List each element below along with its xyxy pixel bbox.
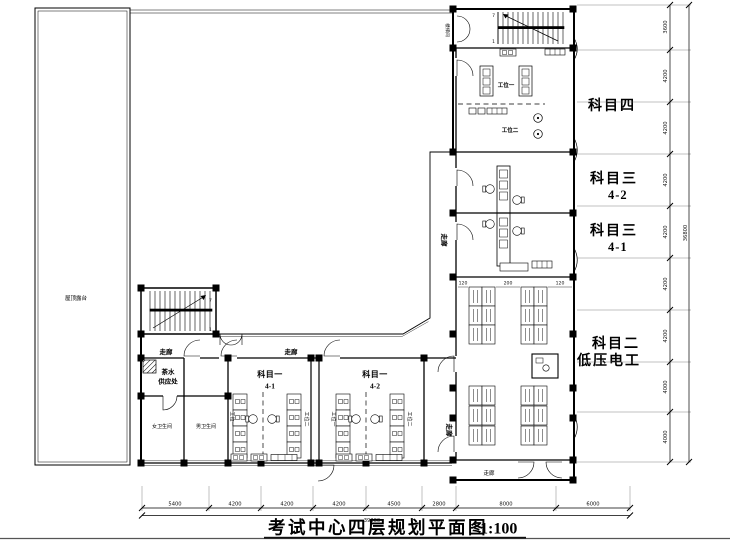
floor-plan-page: 屋顶露台 bbox=[0, 0, 730, 540]
title-block: 考试中心四层规划平面图 1:100 bbox=[0, 518, 730, 539]
label-corridor-5: 走廊 bbox=[483, 469, 495, 477]
dim-inner-1: 200 bbox=[504, 281, 513, 287]
label-station2-subject4: 工位二 bbox=[502, 126, 519, 134]
label-subject3-42: 科目三 bbox=[590, 170, 638, 187]
dim-right-4: 4200 bbox=[663, 225, 669, 238]
roof-terrace bbox=[35, 8, 130, 465]
dim-right-6: 4200 bbox=[663, 329, 669, 342]
label-station2-room2: 工位二 bbox=[406, 411, 413, 426]
label-corridor-4: 走廊 bbox=[445, 423, 454, 438]
label-subject2-line1: 科目二 bbox=[592, 335, 640, 352]
dim-right-1: 4200 bbox=[663, 69, 669, 82]
room-subject2-furniture bbox=[458, 287, 572, 445]
label-subject1-room2: 科目一 bbox=[362, 369, 388, 379]
label-subject1-room2-num: 4-2 bbox=[370, 382, 380, 391]
label-subject3-41-num: 4-1 bbox=[608, 240, 628, 254]
label-subject1-room1-num: 4-1 bbox=[265, 382, 275, 391]
stair-top-flight-number-bottom: 1 bbox=[492, 39, 495, 45]
dim-bottom-0: 5400 bbox=[168, 502, 181, 508]
label-subject1-room1: 科目一 bbox=[257, 369, 283, 379]
floor-plan-canvas: 屋顶露台 bbox=[0, 0, 730, 540]
dim-right-5: 4200 bbox=[663, 277, 669, 290]
stair-top-flight-number-top: 7 bbox=[492, 13, 495, 19]
dim-right-3: 4200 bbox=[663, 173, 669, 186]
label-station1-room1: 工位一 bbox=[229, 411, 236, 426]
page-title-scale: 1:100 bbox=[480, 521, 517, 538]
label-roof-terrace: 屋顶露台 bbox=[65, 294, 88, 302]
stair-mid bbox=[150, 291, 212, 331]
dim-bottom-1: 4200 bbox=[228, 502, 241, 508]
label-station1-room2: 工位一 bbox=[330, 411, 337, 426]
page-title: 考试中心四层规划平面图 bbox=[267, 518, 488, 538]
columns bbox=[138, 6, 577, 484]
dim-right-total: 36800 bbox=[683, 225, 689, 242]
label-station2-room1: 工位二 bbox=[303, 411, 310, 426]
dim-inner-2: 120 bbox=[556, 281, 565, 287]
dimension-bottom bbox=[139, 486, 633, 519]
dim-bottom-6: 8000 bbox=[499, 502, 512, 508]
dim-right-2: 4200 bbox=[663, 121, 669, 134]
dim-bottom-2: 4200 bbox=[280, 502, 293, 508]
label-subject3-42-num: 4-2 bbox=[608, 188, 628, 202]
room-subject1-furniture bbox=[231, 392, 404, 461]
label-toilet-male: 男卫生间 bbox=[196, 423, 216, 430]
side-labels: 科目四 科目三 4-2 科目三 4-1 科目二 低压电工 bbox=[576, 97, 641, 369]
corridor-wall bbox=[216, 152, 456, 337]
room-subject3-furniture bbox=[483, 166, 552, 271]
dim-bottom-5: 2800 bbox=[432, 502, 445, 508]
label-station1-subject4: 工位一 bbox=[498, 81, 515, 89]
label-toilet-female: 女卫生间 bbox=[152, 423, 172, 430]
dim-bottom-4: 4500 bbox=[387, 502, 400, 508]
label-subject4: 科目四 bbox=[588, 97, 636, 114]
label-corridor-2: 走廊 bbox=[284, 347, 299, 356]
stair-mid-flight-number-top: 7 bbox=[209, 298, 212, 304]
dim-inner-0: 120 bbox=[459, 281, 468, 287]
dim-bottom-3: 4200 bbox=[332, 502, 345, 508]
parapet-line bbox=[130, 10, 452, 13]
dim-right-8: 4000 bbox=[663, 430, 669, 443]
label-corridor-1: 走廊 bbox=[159, 347, 174, 356]
dim-bottom-7: 6000 bbox=[586, 502, 599, 508]
label-subject3-41: 科目三 bbox=[590, 222, 638, 239]
stair-mid-flight-number-bottom: 1 bbox=[209, 327, 212, 333]
label-stairwell: 楼梯间 bbox=[444, 23, 451, 37]
label-tea-line2: 供应处 bbox=[157, 377, 178, 386]
tea-room bbox=[143, 360, 156, 373]
label-corridor-3: 走廊 bbox=[440, 233, 449, 248]
dim-right-7: 4000 bbox=[663, 380, 669, 393]
label-tea-line1: 茶水 bbox=[161, 367, 176, 376]
stair-top bbox=[498, 12, 565, 56]
label-subject2-line2: 低压电工 bbox=[576, 352, 641, 369]
dim-right-0: 3600 bbox=[663, 20, 669, 33]
